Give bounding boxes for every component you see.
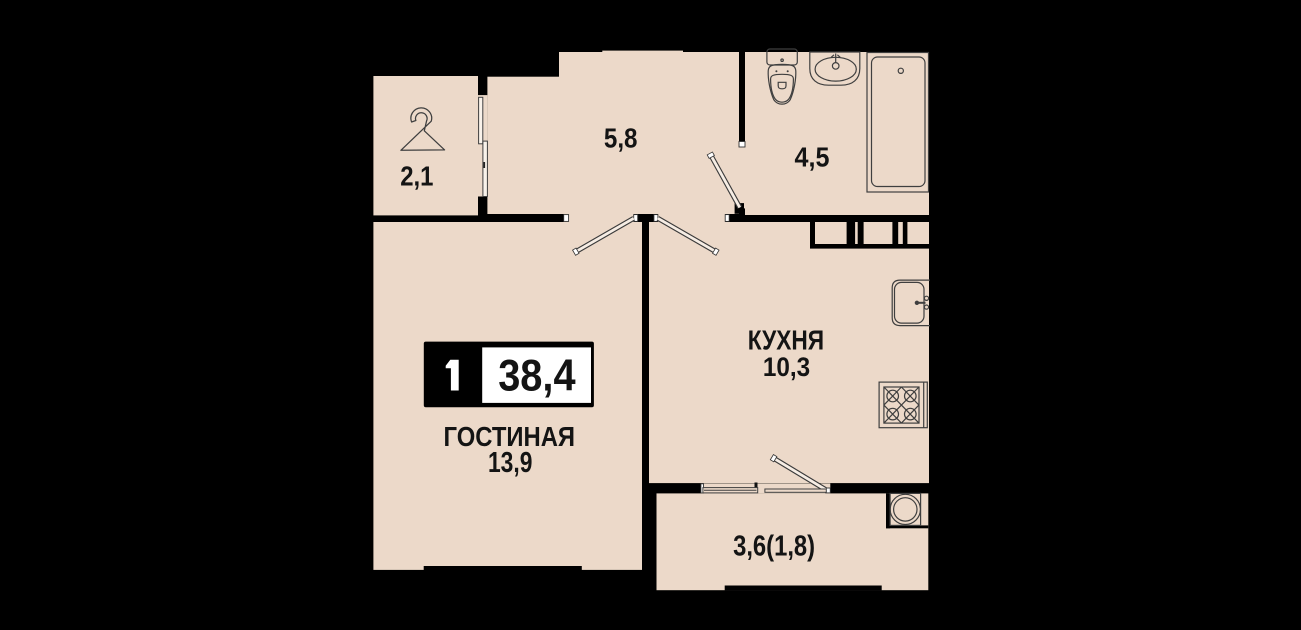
svg-text:КУХНЯ: КУХНЯ (748, 324, 824, 355)
svg-text:2,1: 2,1 (400, 161, 433, 192)
svg-text:5,8: 5,8 (604, 122, 638, 153)
svg-text:3,6(1,8): 3,6(1,8) (733, 530, 815, 562)
svg-text:4,5: 4,5 (795, 142, 830, 173)
svg-text:10,3: 10,3 (763, 352, 810, 382)
svg-text:38,4: 38,4 (498, 352, 576, 401)
svg-text:13,9: 13,9 (488, 447, 532, 479)
